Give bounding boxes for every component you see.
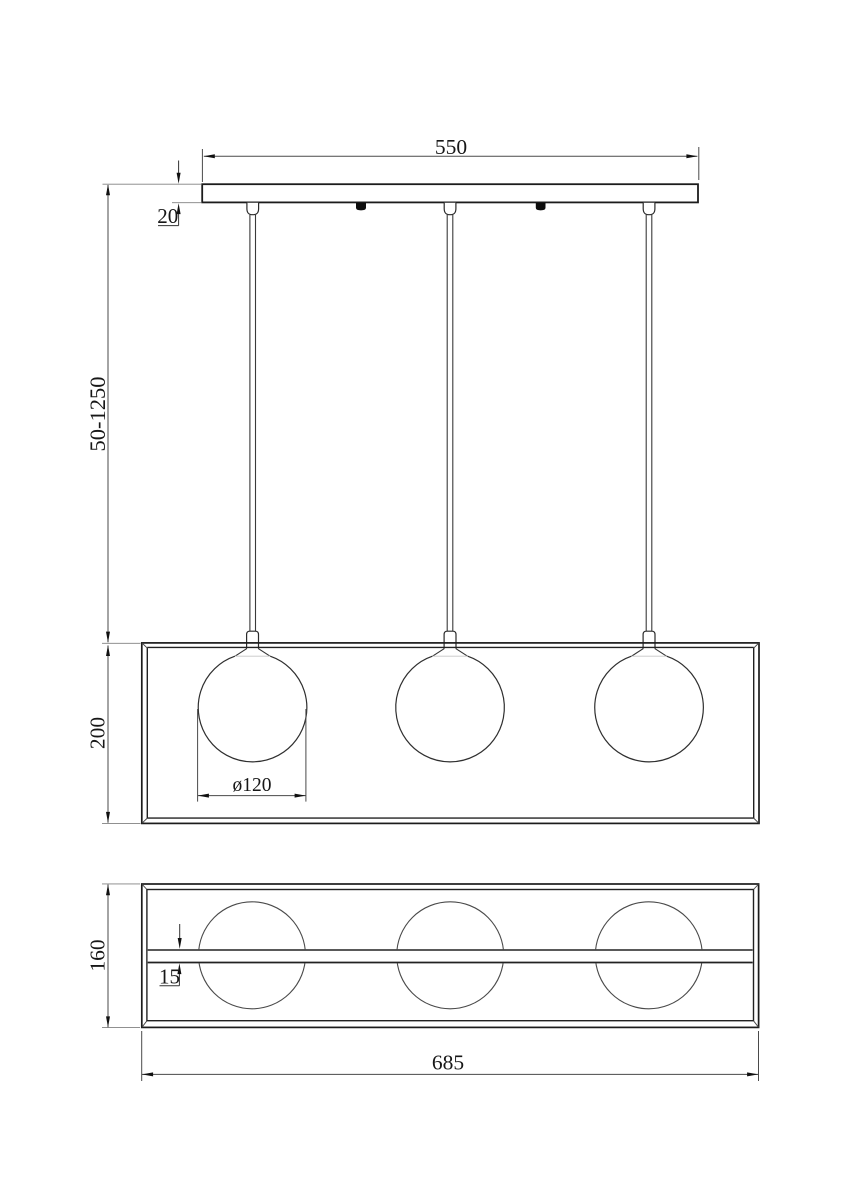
svg-text:ø120: ø120	[233, 775, 272, 796]
svg-text:20: 20	[157, 204, 178, 228]
svg-text:50-1250: 50-1250	[85, 377, 110, 452]
svg-text:15: 15	[159, 964, 180, 988]
svg-text:160: 160	[86, 939, 110, 971]
svg-text:550: 550	[435, 135, 467, 159]
svg-text:200: 200	[86, 717, 110, 749]
svg-text:685: 685	[432, 1051, 464, 1075]
